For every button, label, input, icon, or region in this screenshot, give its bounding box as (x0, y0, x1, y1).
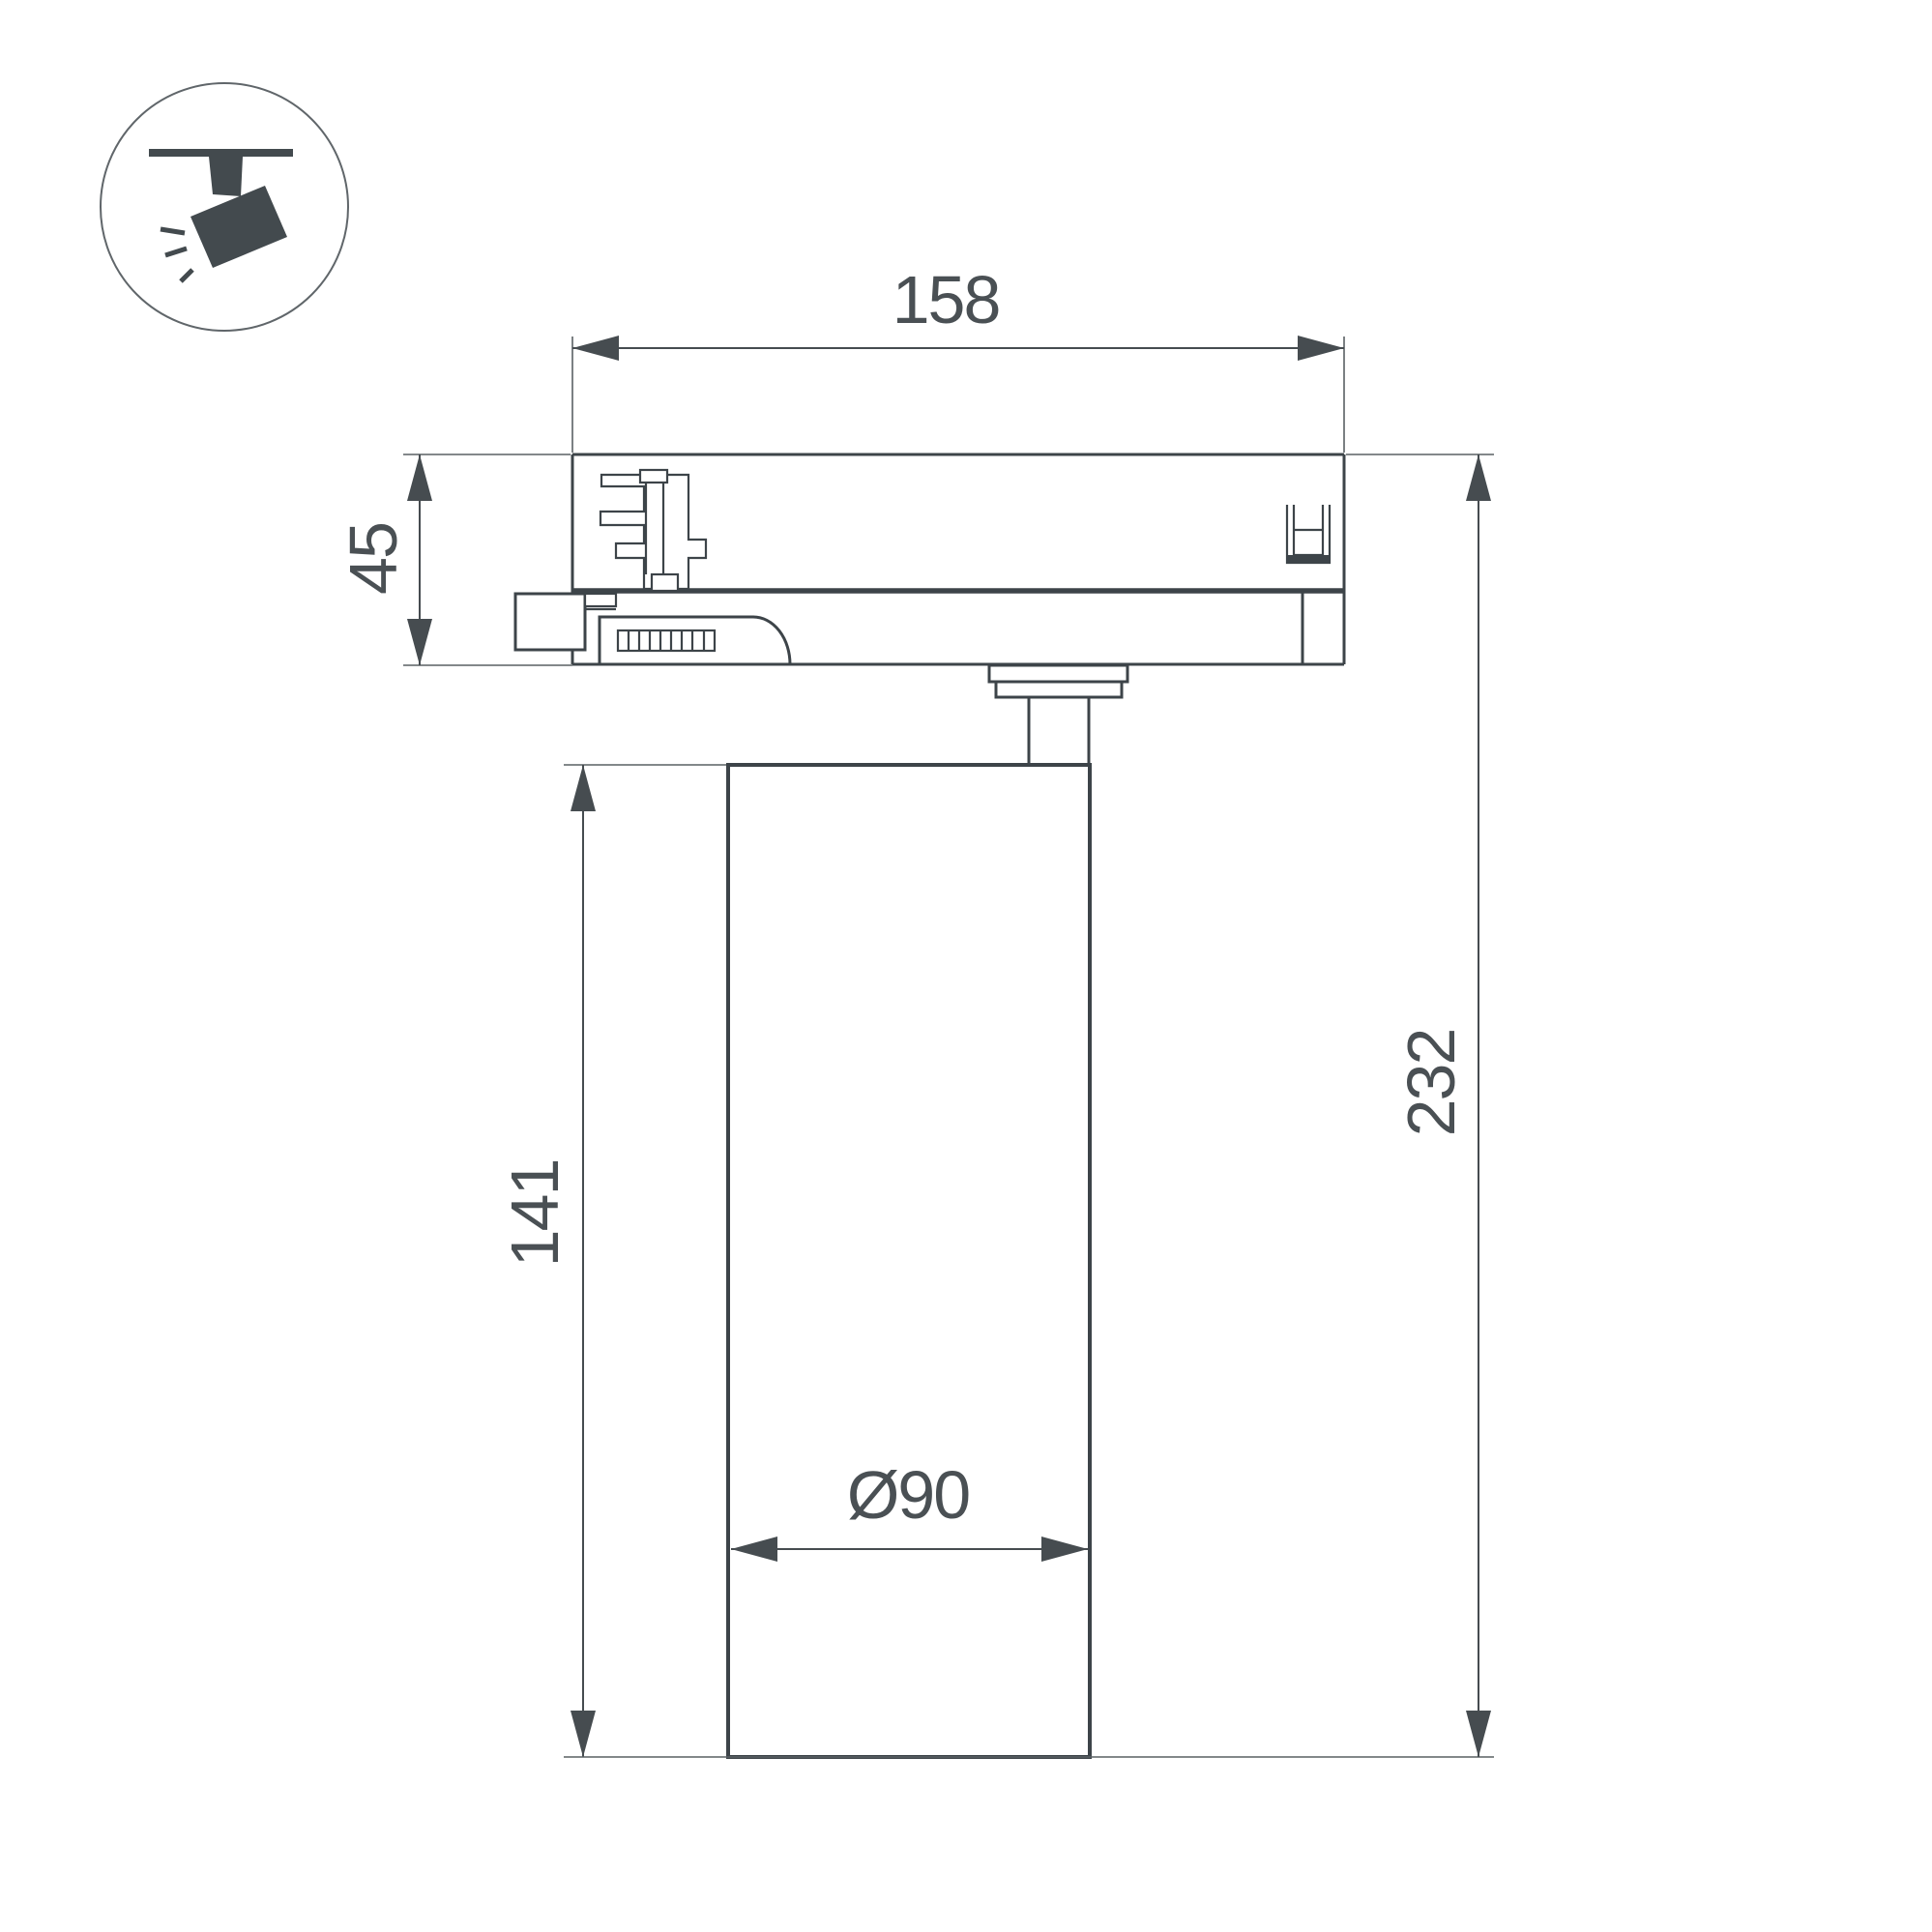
drawing-canvas: 158 45 141 232 Ø90 (0, 0, 1932, 1932)
dimension-158: 158 (572, 262, 1344, 453)
contact-prongs (600, 470, 706, 591)
track-adapter (515, 454, 1344, 765)
dim-diameter-label: Ø90 (847, 1457, 969, 1533)
arrowhead-top (407, 454, 432, 501)
prong-foot (652, 574, 678, 591)
dim-158-label: 158 (893, 262, 1000, 337)
stem-flange-upper (989, 665, 1127, 682)
arrowhead-left (572, 336, 619, 361)
dim-45-label: 45 (336, 523, 411, 595)
track-stem (209, 157, 243, 196)
mounting-stem (989, 665, 1127, 765)
arrowhead-right (1298, 336, 1344, 361)
arrowhead-bottom (407, 619, 432, 665)
ceiling-line (149, 149, 293, 157)
arrowhead-bottom (571, 1711, 596, 1757)
dip-switch (618, 630, 715, 651)
lamp-cylinder (728, 765, 1090, 1757)
prong-screw-cap (640, 470, 667, 483)
latch-clip (585, 594, 616, 609)
arrowhead-top (571, 765, 596, 811)
technical-drawing-svg: 158 45 141 232 Ø90 (0, 0, 1932, 1932)
dim-141-label: 141 (497, 1160, 572, 1268)
arrowhead-top (1466, 454, 1491, 501)
arrowhead-bottom (1466, 1711, 1491, 1757)
track-light-icon (101, 83, 348, 331)
stem-flange-lower (996, 682, 1122, 697)
dim-232-label: 232 (1393, 1030, 1469, 1137)
adapter-lower-body (515, 591, 1344, 664)
latch-lever (515, 594, 585, 650)
locking-clip (1287, 505, 1330, 563)
dimension-141: 141 (497, 765, 726, 1757)
